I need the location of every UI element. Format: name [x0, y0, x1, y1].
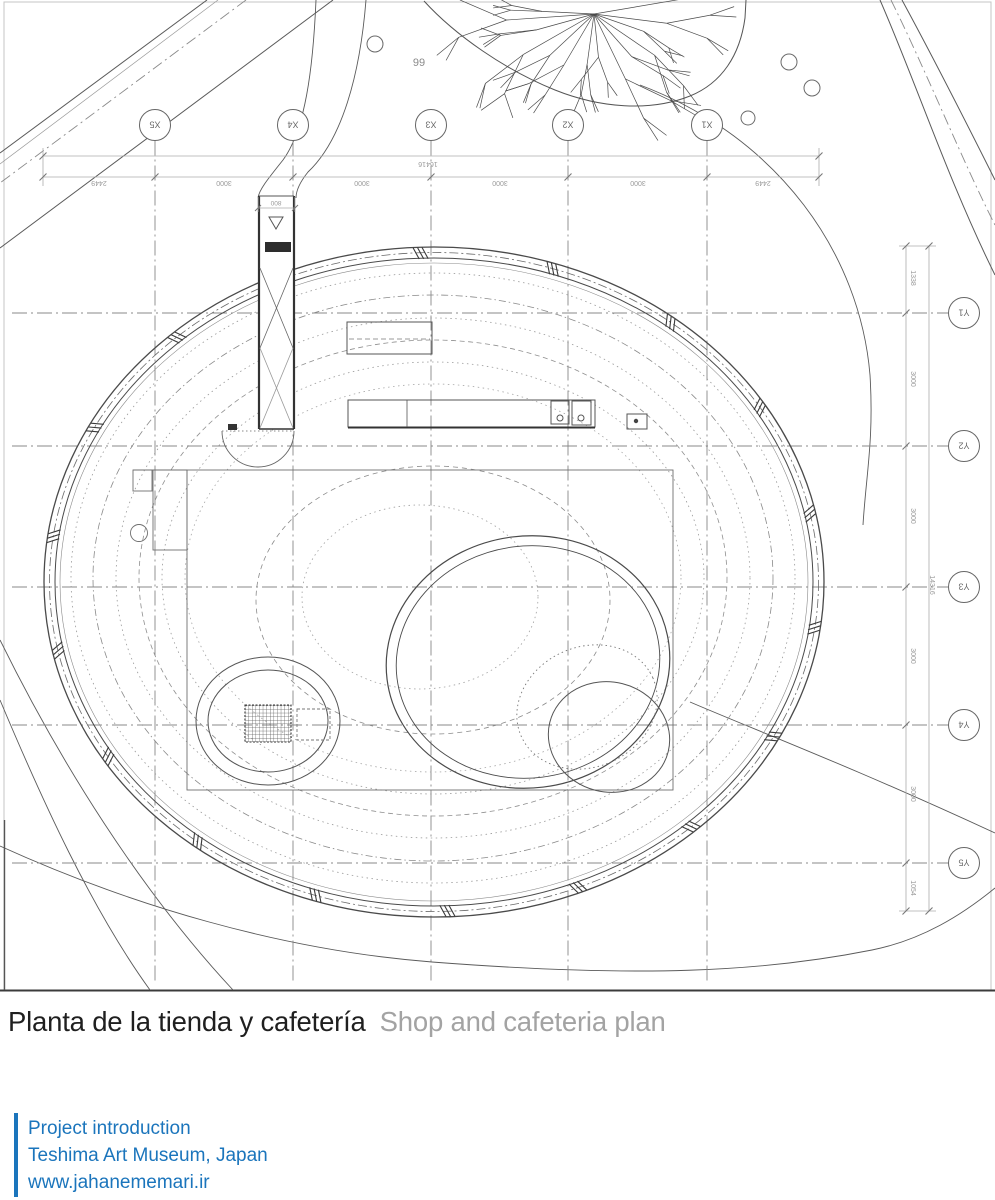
footer-line-project: Project introduction: [28, 1115, 268, 1142]
grid-bubble-y5: Y5: [949, 848, 980, 879]
grid-bubble-x1: X1: [692, 110, 723, 141]
svg-text:16416: 16416: [418, 160, 438, 167]
svg-text:3000: 3000: [492, 179, 508, 186]
svg-text:3000: 3000: [216, 179, 232, 186]
dimension-chain-right: 1338 3000 3000 3000 3000 1054 14316: [899, 243, 936, 915]
grid-bubble-x4: X4: [278, 110, 309, 141]
entrance-path: [258, 0, 366, 198]
shelf-unit: [347, 322, 432, 354]
footer-accent-bar: [14, 1113, 18, 1197]
terrain-contours: [0, 85, 995, 990]
svg-text:1338: 1338: [909, 270, 916, 286]
svg-text:Y3: Y3: [958, 582, 969, 592]
svg-text:X2: X2: [562, 120, 573, 130]
svg-text:1054: 1054: [909, 880, 916, 896]
svg-text:Y4: Y4: [958, 720, 969, 730]
svg-text:X3: X3: [425, 120, 436, 130]
grid-bubble-x2: X2: [553, 110, 584, 141]
footer-line-url: www.jahanememari.ir: [28, 1169, 268, 1196]
svg-text:3000: 3000: [630, 179, 646, 186]
reception-desk: [153, 470, 187, 550]
grid-lines: [12, 141, 948, 984]
service-counter: [348, 400, 595, 427]
svg-text:2449: 2449: [91, 179, 107, 186]
svg-text:X5: X5: [149, 120, 160, 130]
svg-text:X1: X1: [701, 120, 712, 130]
hatched-block: [245, 705, 291, 742]
svg-text:Y2: Y2: [958, 441, 969, 451]
svg-text:3000: 3000: [909, 786, 916, 802]
svg-text:2449: 2449: [755, 179, 771, 186]
caption: Planta de la tienda y cafeteríaShop and …: [8, 1006, 666, 1038]
interior-layout: [131, 470, 674, 790]
grid-bubble-y4: Y4: [949, 710, 980, 741]
entrance-mat: [265, 242, 291, 252]
site-note-label: 99: [413, 57, 425, 69]
svg-text:14316: 14316: [928, 575, 935, 595]
dashed-block: [297, 709, 330, 740]
grid-bubbles-y: Y1 Y2 Y3 Y4 Y5: [949, 298, 980, 879]
roof-contour-rings: [71, 273, 795, 883]
entrance-corridor: [222, 196, 295, 467]
grid-bubble-y3: Y3: [949, 572, 980, 603]
svg-text:800: 800: [270, 199, 281, 206]
chair: [131, 525, 148, 542]
caption-title-spanish: Planta de la tienda y cafetería: [8, 1006, 366, 1037]
footer-line-museum: Teshima Art Museum, Japan: [28, 1142, 268, 1169]
grid-bubble-y1: Y1: [949, 298, 980, 329]
sheet-border: [0, 2, 995, 991]
grid-bubbles-x: X5 X4 X3 X2 X1: [140, 110, 723, 141]
grid-bubble-x3: X3: [416, 110, 447, 141]
roof-openings: [372, 520, 685, 805]
svg-text:Y5: Y5: [958, 858, 969, 868]
entrance-door: [222, 424, 294, 467]
page: 99: [0, 0, 995, 1200]
tree-canopy-outline: [424, 0, 746, 106]
floor-plan-drawing: 99: [0, 0, 995, 1000]
caption-title-english: Shop and cafeteria plan: [380, 1006, 666, 1037]
footer-credit: Project introduction Teshima Art Museum,…: [14, 1113, 268, 1197]
dimension-ticks: [903, 243, 933, 915]
svg-text:3000: 3000: [909, 508, 916, 524]
svg-text:3000: 3000: [909, 648, 916, 664]
grid-bubble-x5: X5: [140, 110, 171, 141]
svg-text:Y1: Y1: [958, 308, 969, 318]
hatched-feature: [196, 657, 340, 785]
svg-text:3000: 3000: [354, 179, 370, 186]
svg-text:X4: X4: [287, 120, 298, 130]
svg-text:3000: 3000: [909, 371, 916, 387]
grid-bubble-y2: Y2: [949, 431, 980, 462]
cafeteria-fixtures: [347, 322, 647, 429]
